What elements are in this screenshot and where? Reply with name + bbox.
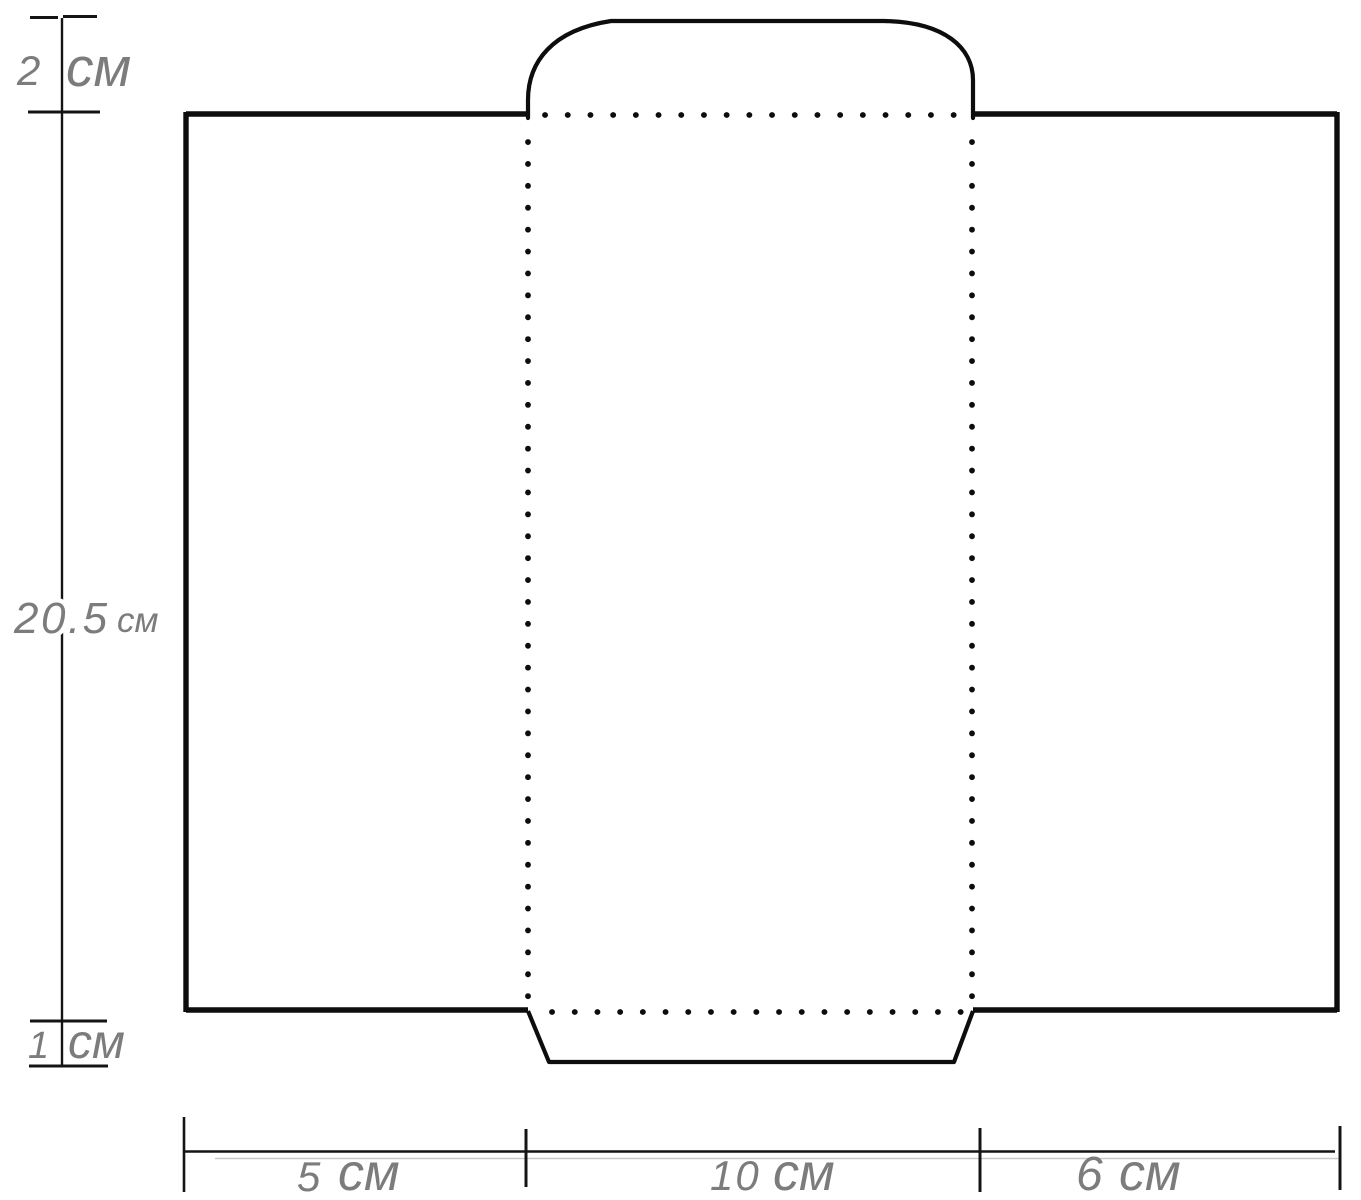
svg-text:см: см (66, 36, 131, 98)
svg-text:2: 2 (16, 47, 40, 94)
svg-text:см: см (773, 1144, 835, 1200)
svg-text:10: 10 (710, 1152, 761, 1199)
svg-text:1: 1 (28, 1025, 49, 1067)
svg-text:20.5: 20.5 (13, 594, 110, 643)
svg-text:см: см (68, 1016, 125, 1069)
svg-text:см: см (338, 1144, 400, 1200)
svg-text:см: см (1119, 1144, 1181, 1200)
svg-text:6: 6 (1076, 1148, 1103, 1200)
svg-text:5: 5 (297, 1153, 321, 1200)
svg-text:см: см (117, 601, 159, 640)
